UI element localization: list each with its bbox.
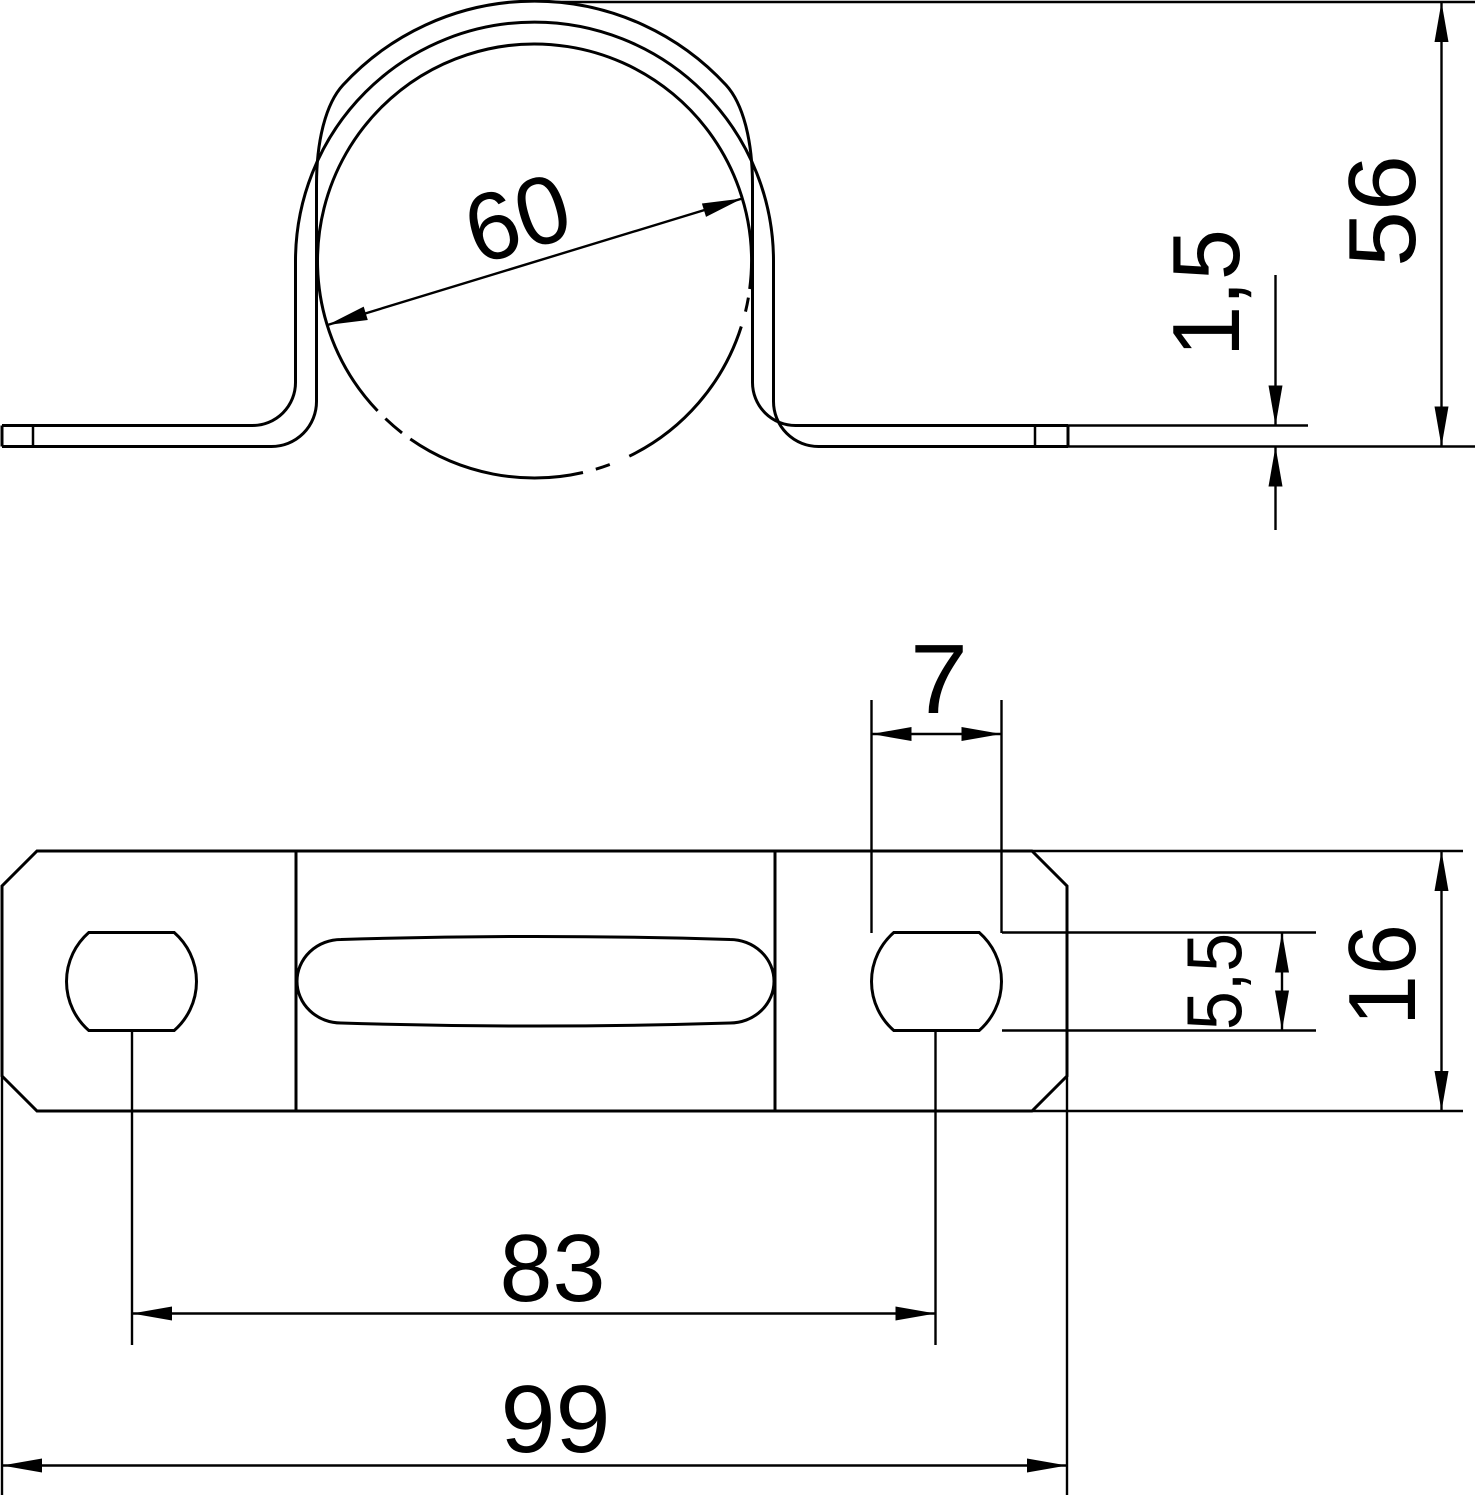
svg-text:16: 16	[1329, 924, 1436, 1026]
svg-text:7: 7	[910, 624, 968, 734]
svg-text:5,5: 5,5	[1170, 933, 1258, 1030]
svg-text:83: 83	[500, 1215, 606, 1322]
svg-text:99: 99	[501, 1366, 611, 1473]
svg-text:1,5: 1,5	[1153, 229, 1260, 357]
svg-text:56: 56	[1329, 155, 1436, 267]
